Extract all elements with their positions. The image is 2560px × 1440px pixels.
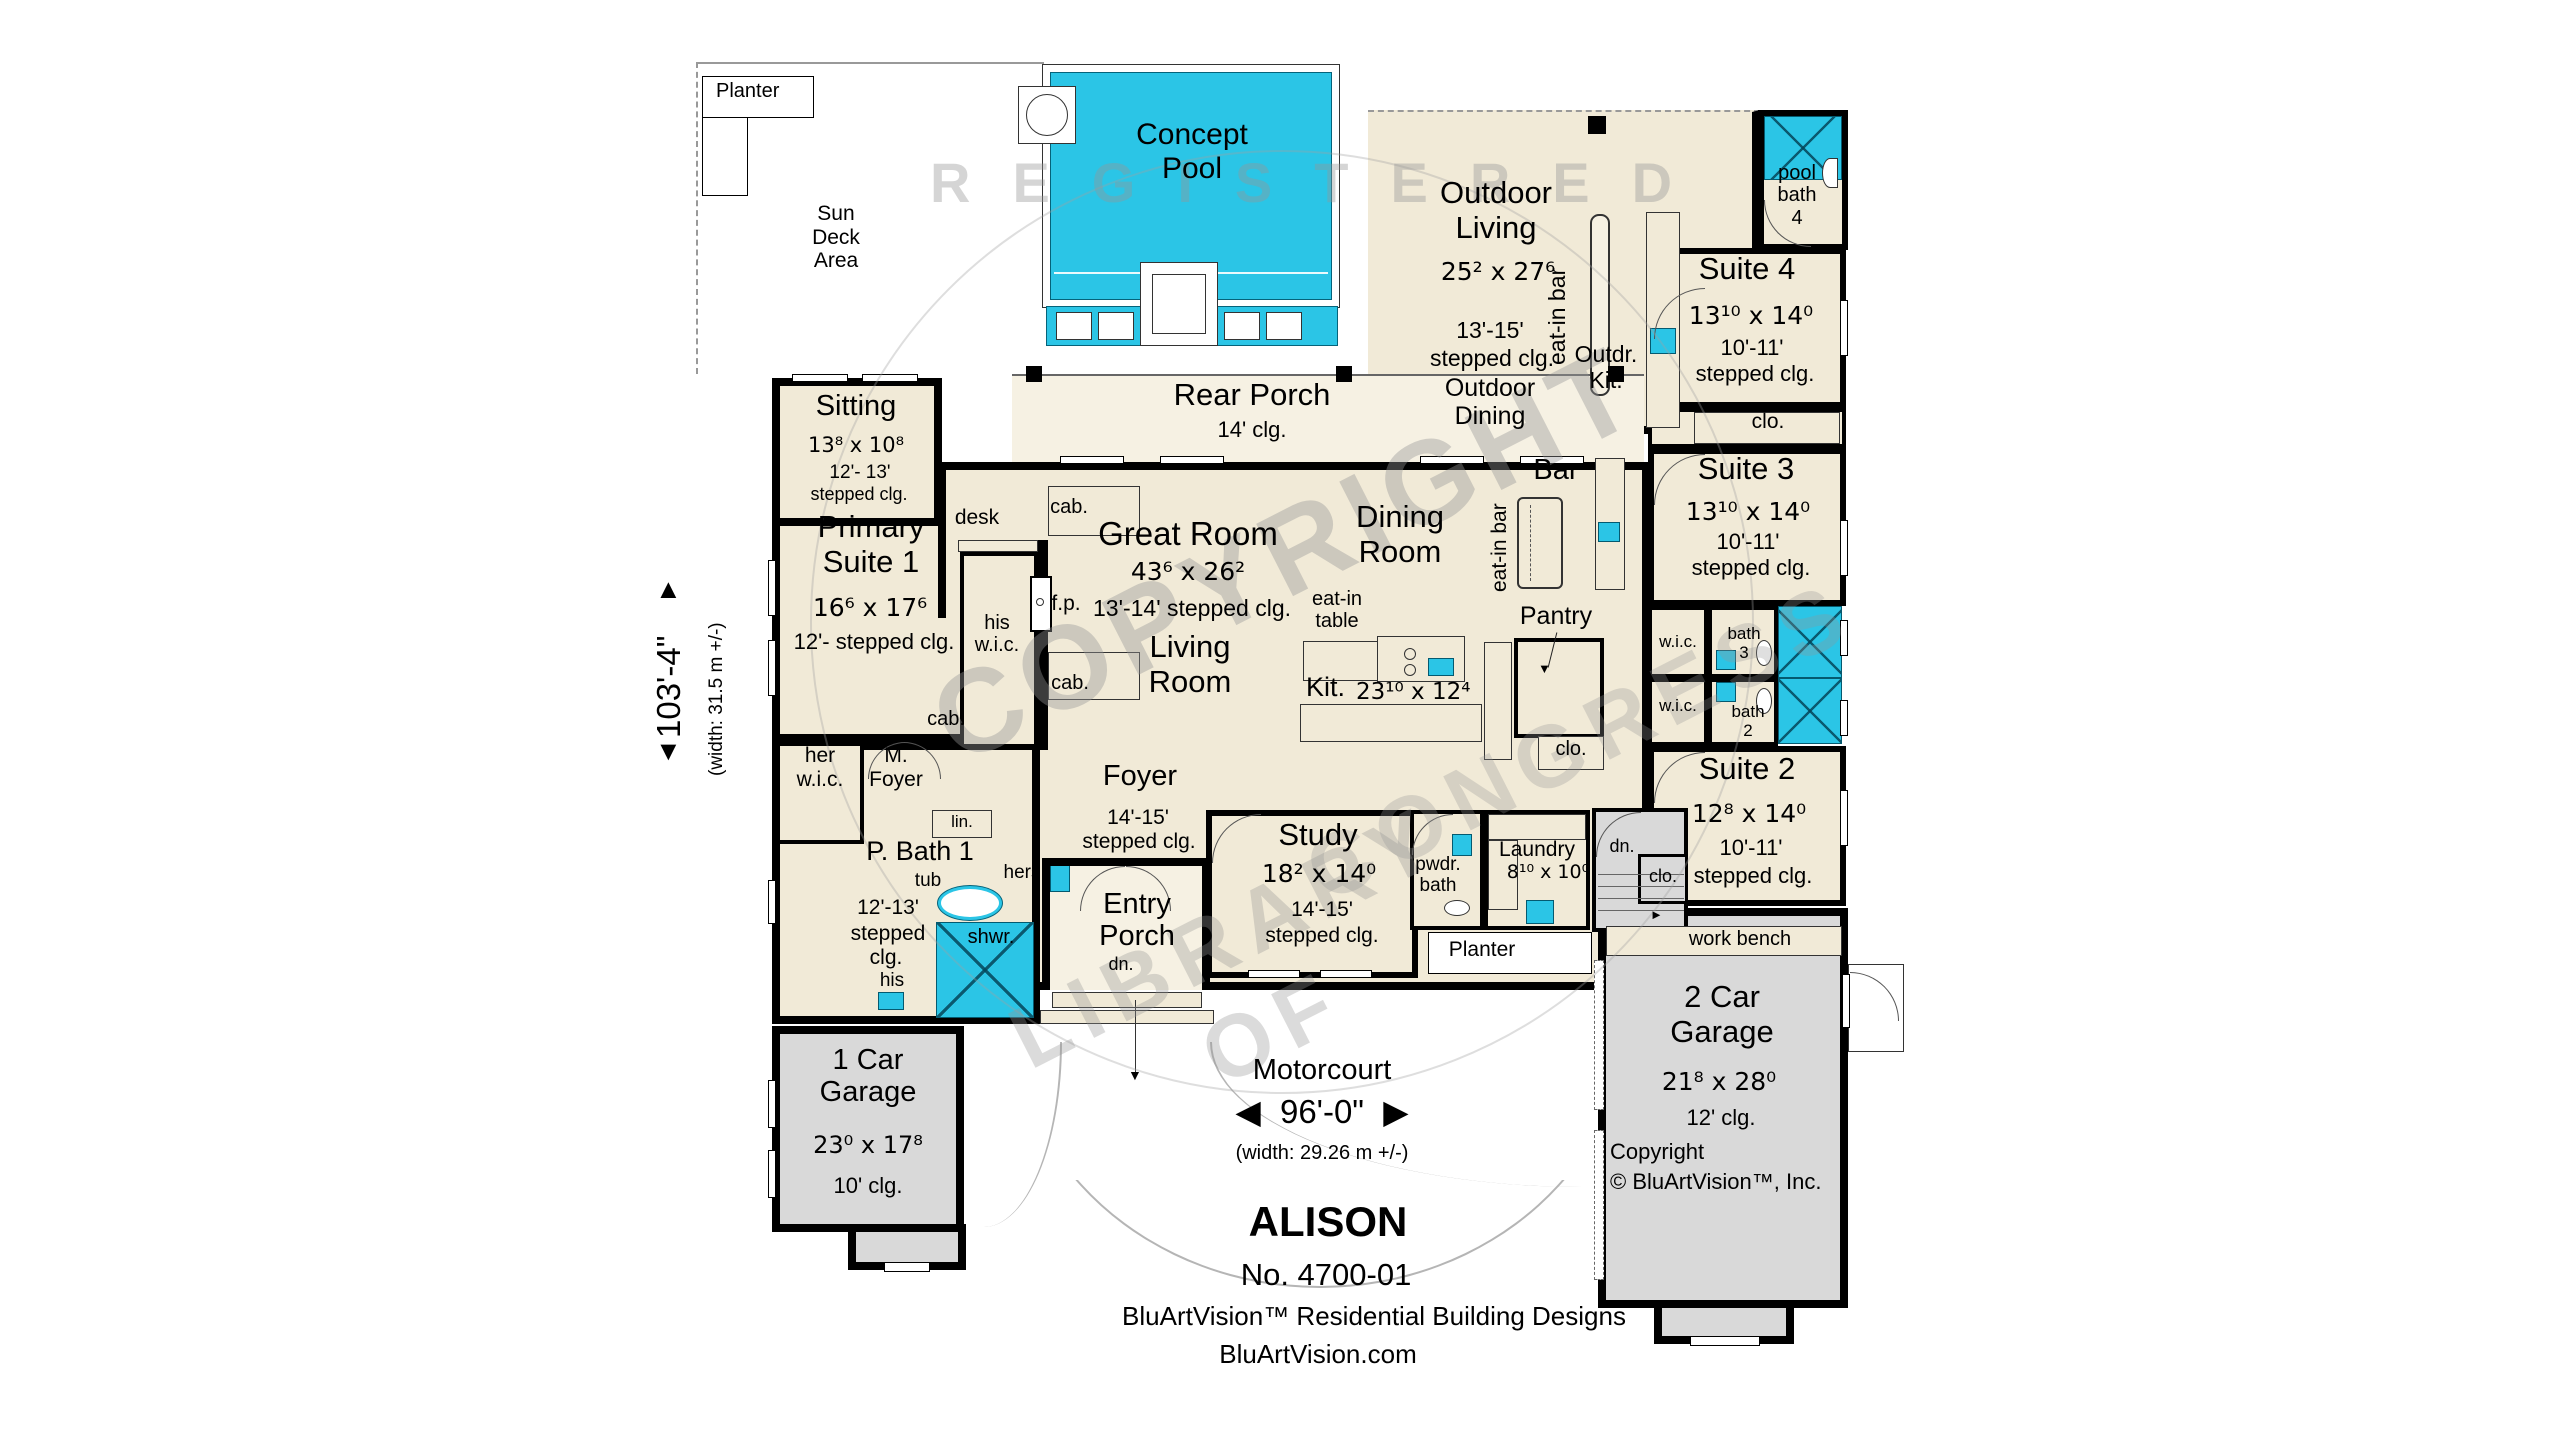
entry-step-1 <box>1052 992 1202 1008</box>
kitchen-burner-1 <box>1404 648 1416 660</box>
linen-label: lin. <box>951 812 973 831</box>
window-bath3 <box>1840 620 1848 656</box>
primary-line1: Primary <box>818 510 925 545</box>
outdoor-dining-label: Outdoor Dining <box>1445 374 1535 430</box>
stairs-closet-label: clo. <box>1649 866 1677 886</box>
dim-left-arrow-down: ▼ <box>655 736 682 766</box>
m-foyer-line2: Foyer <box>869 768 923 792</box>
concept-pool-label: Concept Pool <box>1136 118 1248 185</box>
window-primary-1 <box>768 560 776 616</box>
tub <box>938 886 1002 920</box>
motorcourt-arrow-left: ◀ <box>1235 1093 1260 1130</box>
shower-label: shwr. <box>968 926 1015 948</box>
foyer-clg1: 14'-15' <box>1107 806 1169 830</box>
sitting-east-wall <box>938 470 946 618</box>
dining-room-label: Dining Room <box>1356 500 1444 569</box>
bath2-label: bath 2 <box>1731 702 1764 740</box>
garage1-clg: 10' clg. <box>833 1174 902 1199</box>
window-study-2 <box>1320 970 1372 978</box>
powder-toilet <box>1444 900 1470 916</box>
sun-deck-label: Sun Deck Area <box>812 202 860 273</box>
his-label: his <box>880 970 904 991</box>
plan-number: No. 4700-01 <box>1241 1258 1412 1293</box>
garage1-line1: 1 Car <box>820 1044 917 1076</box>
bath2-number: 2 <box>1731 721 1764 740</box>
door-garage-stoop <box>1842 974 1850 1028</box>
sitting-clg2: stepped clg. <box>810 484 907 504</box>
cab-upper-label: cab. <box>1050 496 1088 518</box>
dim-left-value: 103'-4" <box>650 608 688 738</box>
ledge-tile-3 <box>1224 312 1260 340</box>
window-bath2 <box>1840 700 1848 736</box>
entry-dn-label: dn. <box>1108 954 1133 974</box>
sun-deck-line1: Sun <box>812 202 860 226</box>
bath3-label: bath 3 <box>1727 624 1760 662</box>
garage2-line2: Garage <box>1670 1015 1773 1050</box>
desk-counter <box>958 540 1038 552</box>
eat-in-table-line2: table <box>1312 610 1362 632</box>
kitchen-burner-2 <box>1404 664 1416 676</box>
garage1-label: 1 Car Garage <box>820 1044 917 1109</box>
dining-room-line2: Room <box>1356 535 1444 570</box>
bath2-shower <box>1778 678 1842 744</box>
p-bath-clg1: 12'-13' <box>857 896 919 920</box>
suite3-dims: 13¹⁰ x 14⁰ <box>1686 498 1810 526</box>
pantry-label: Pantry <box>1520 602 1592 630</box>
outdoor-living-clg1: 13'-15' <box>1456 318 1524 344</box>
dim-left-arrow-up: ▲ <box>655 574 682 604</box>
wic3-label: w.i.c. <box>1659 632 1697 651</box>
bar-counter-dash <box>1530 505 1531 581</box>
sun-deck-line2: Deck <box>812 226 860 250</box>
kitchen-dims: 23¹⁰ x 12⁴ <box>1356 680 1470 706</box>
pantry-room <box>1514 638 1604 738</box>
bar-counter <box>1517 497 1563 589</box>
tub-label: tub <box>915 870 941 891</box>
powder-line1: pwdr. <box>1415 854 1460 875</box>
suite2-label: Suite 2 <box>1699 752 1796 787</box>
motorcourt-arrow-right: ▶ <box>1383 1093 1408 1130</box>
window-garage1-2 <box>768 1150 776 1198</box>
garage2-clg: 12' clg. <box>1686 1106 1755 1131</box>
suite4-clg1: 10'-11' <box>1720 336 1783 361</box>
study-clg1: 14'-15' <box>1291 898 1353 922</box>
garage-2-bay-2 <box>1594 1130 1604 1280</box>
m-foyer-label: M. Foyer <box>869 744 923 791</box>
primary-dims: 16⁶ x 17⁶ <box>813 594 927 622</box>
p-bath-clg3: clg. <box>870 946 903 970</box>
pool-spa-box-inner <box>1152 274 1206 334</box>
primary-suite-label: Primary Suite 1 <box>818 510 925 579</box>
plan-name: ALISON <box>1249 1198 1408 1245</box>
garage2-copyright1: Copyright <box>1610 1140 1704 1165</box>
entry-arrow-head: ▼ <box>1128 1068 1142 1084</box>
primary-south-wall <box>772 734 964 742</box>
bath3-number: 3 <box>1727 643 1760 662</box>
powder-sink <box>1452 834 1472 856</box>
motorcourt-dimension: ◀ 96'-0" ▶ <box>1235 1094 1408 1131</box>
garage-2-door <box>1690 1336 1760 1346</box>
kitchen-sink <box>1428 658 1454 676</box>
entry-step-2 <box>1040 1010 1214 1024</box>
pool-line2: Pool <box>1136 152 1248 186</box>
foyer-entry-wall <box>1042 858 1212 866</box>
his-sink <box>878 992 904 1010</box>
living-room-label: Living Room <box>1149 630 1232 699</box>
sitting-label: Sitting <box>816 390 897 422</box>
window-sitting-2 <box>862 374 918 382</box>
great-room-west-wall <box>1038 540 1048 750</box>
garage1-dims: 23⁰ x 17⁸ <box>813 1132 923 1159</box>
planter-bottom-label: Planter <box>1449 938 1516 962</box>
bath2-sink <box>1716 682 1736 702</box>
pool-bath-line2: bath <box>1778 184 1817 206</box>
motorcourt-metric: (width: 29.26 m +/-) <box>1236 1142 1409 1164</box>
sitting-clg1: 12'- 13' <box>829 462 890 483</box>
bath2-line1: bath <box>1731 702 1764 721</box>
suite4-clg2: stepped clg. <box>1696 362 1815 387</box>
outdoor-living-line2: Living <box>1440 211 1552 246</box>
eat-in-table-line1: eat-in <box>1312 588 1362 610</box>
spa-circle <box>1026 94 1068 136</box>
garage2-dims: 21⁸ x 28⁰ <box>1662 1068 1776 1096</box>
outdoor-dining-line2: Dining <box>1445 402 1535 430</box>
bar-label: Bar <box>1533 454 1578 486</box>
his-wic-line2: w.i.c. <box>975 634 1019 656</box>
desk-label: desk <box>955 506 999 530</box>
porch-column-2 <box>1336 366 1352 382</box>
rear-porch-clg: 14' clg. <box>1217 418 1286 443</box>
dim-left-metric: (width: 31.5 m +/-) <box>706 590 728 776</box>
his-wic-label: his w.i.c. <box>975 612 1019 657</box>
ledge-tile-4 <box>1266 312 1302 340</box>
suite2-clg1: 10'-11' <box>1719 836 1782 861</box>
garage-1-door <box>884 1262 930 1272</box>
company-line: BluArtVision™ Residential Building Desig… <box>1122 1302 1626 1331</box>
laundry-counter-top <box>1488 814 1586 840</box>
window-garage1-1 <box>768 1080 776 1128</box>
dining-room-line1: Dining <box>1356 500 1444 535</box>
powder-line2: bath <box>1415 875 1460 896</box>
window-greatroom-1 <box>1060 456 1124 464</box>
pool-bath-sink <box>1822 158 1838 188</box>
p-bath-label: P. Bath 1 <box>866 836 974 866</box>
window-dining-1 <box>1420 456 1484 464</box>
living-room-line2: Room <box>1149 665 1232 700</box>
motorcourt-value: 96'-0" <box>1270 1093 1374 1130</box>
bar-eat-in-label: eat-in bar <box>1488 496 1512 592</box>
great-room-dims: 43⁶ x 26² <box>1131 558 1245 586</box>
entry-porch-line1: Entry <box>1099 888 1175 920</box>
her-wic-line1: her <box>797 744 844 768</box>
powder-label: pwdr. bath <box>1415 854 1460 897</box>
outdoor-living-clg2: stepped clg. <box>1430 346 1554 372</box>
outdoor-living-line1: Outdoor <box>1440 176 1552 211</box>
wic2-label: w.i.c. <box>1659 696 1697 715</box>
motorcourt-label: Motorcourt <box>1253 1054 1392 1086</box>
outdoor-living-label: Outdoor Living <box>1440 176 1552 245</box>
suite3-label: Suite 3 <box>1698 452 1795 487</box>
suite2-dims: 12⁸ x 14⁰ <box>1692 800 1806 828</box>
suite3-clg2: stepped clg. <box>1692 556 1811 581</box>
suite2-clg2: stepped clg. <box>1694 864 1813 889</box>
window-study-1 <box>1248 970 1300 978</box>
entry-porch-label: Entry Porch <box>1099 888 1175 953</box>
website-line: BluArtVision.com <box>1219 1340 1417 1369</box>
work-bench-label: work bench <box>1689 928 1791 950</box>
suite4-dims: 13¹⁰ x 14⁰ <box>1689 302 1813 330</box>
outdoor-dining-line1: Outdoor <box>1445 374 1535 402</box>
study-dims: 18² x 14⁰ <box>1262 860 1376 888</box>
kitchen-label: Kit. <box>1306 672 1345 702</box>
garage2-copyright2: © BluArtVision™, Inc. <box>1610 1170 1821 1195</box>
pantry-cabinet-column <box>1484 642 1512 760</box>
rear-porch-label: Rear Porch <box>1174 378 1331 413</box>
hers-sink <box>1050 864 1070 892</box>
window-suite3-1 <box>1840 520 1848 576</box>
outdoor-living-dims: 25² x 27⁶ <box>1441 258 1555 286</box>
his-wic-line1: his <box>975 612 1019 634</box>
eat-in-table-label: eat-in table <box>1312 588 1362 633</box>
window-suite2 <box>1840 790 1848 846</box>
sitting-dims: 13⁸ x 10⁸ <box>808 434 904 458</box>
suite4-label: Suite 4 <box>1699 252 1796 287</box>
ledge-tile-1 <box>1056 312 1092 340</box>
bar-sink <box>1598 522 1620 542</box>
bath3-shower <box>1778 606 1842 678</box>
pool-line1: Concept <box>1136 118 1248 152</box>
entry-porch-line2: Porch <box>1099 920 1175 952</box>
garage2-label: 2 Car Garage <box>1670 980 1773 1049</box>
p-bath-clg2: stepped <box>851 922 926 946</box>
study-label: Study <box>1278 818 1357 853</box>
pool-bath-number: 4 <box>1778 207 1817 229</box>
stair-arrow: ► <box>1650 908 1663 923</box>
fireplace-pilot <box>1036 598 1044 606</box>
primary-line2: Suite 1 <box>818 545 925 580</box>
laundry-label: Laundry <box>1499 838 1575 862</box>
hers-label: hers <box>1004 862 1041 883</box>
garage1-line2: Garage <box>820 1076 917 1108</box>
suite3-clg1: 10'-11' <box>1716 530 1779 555</box>
cab-mfoyer-label: cab. <box>927 708 965 730</box>
fp-label: f.p. <box>1051 592 1080 616</box>
outdoor-kitchen-line1: Outdr. <box>1575 342 1638 368</box>
garage-2-bay-1 <box>1594 960 1604 1110</box>
garage2-line1: 2 Car <box>1670 980 1773 1015</box>
study-clg2: stepped clg. <box>1265 924 1378 948</box>
ledge-tile-2 <box>1098 312 1134 340</box>
floor-plan-sheet: REGISTERED COPYRIGHT LIBRARY OF CONGRESS… <box>0 0 2560 1440</box>
entry-walk-line <box>1135 1000 1136 1074</box>
primary-clg: 12'- stepped clg. <box>794 630 955 655</box>
her-wic-label: her w.i.c. <box>797 744 844 791</box>
window-suite4 <box>1840 300 1848 356</box>
foyer-clg2: stepped clg. <box>1082 830 1195 854</box>
great-room-label: Great Room <box>1098 516 1278 553</box>
kitchen-island <box>1300 704 1482 742</box>
stair-tread-3 <box>1598 898 1684 899</box>
pantry-closet-label: clo. <box>1555 738 1586 760</box>
sun-deck-line3: Area <box>812 249 860 273</box>
suite4-closet-label: clo. <box>1752 410 1785 434</box>
cab-lower-label: cab. <box>1051 672 1089 694</box>
planter-top-label: Planter <box>716 80 779 102</box>
window-sitting-1 <box>792 374 848 382</box>
foyer-label: Foyer <box>1103 760 1177 792</box>
outdoor-kitchen-line2: Kit. <box>1575 368 1638 394</box>
great-room-clg: 13'-14' stepped clg. <box>1093 596 1291 622</box>
living-room-line1: Living <box>1149 630 1232 665</box>
her-wic-line2: w.i.c. <box>797 768 844 792</box>
pool-bath-label: pool bath 4 <box>1778 162 1817 229</box>
column-outdoor-living <box>1588 116 1606 134</box>
window-primary-2 <box>768 640 776 696</box>
window-greatroom-2 <box>1160 456 1224 464</box>
m-foyer-line1: M. <box>869 744 923 768</box>
window-herwic <box>768 880 776 924</box>
laundry-dims: 8¹⁰ x 10⁰ <box>1507 862 1589 883</box>
bath3-line1: bath <box>1727 624 1760 643</box>
pantry-arrow-head: ▼ <box>1538 662 1551 677</box>
washer <box>1526 900 1554 924</box>
outdoor-eat-in-bar-label: eat-in bar <box>1544 240 1571 365</box>
stair-tread-4 <box>1598 910 1684 911</box>
outdoor-kitchen-label: Outdr. Kit. <box>1575 342 1638 394</box>
stairs-dn-label: dn. <box>1609 836 1634 856</box>
pool-bath-line1: pool <box>1778 162 1817 184</box>
porch-column-1 <box>1026 366 1042 382</box>
